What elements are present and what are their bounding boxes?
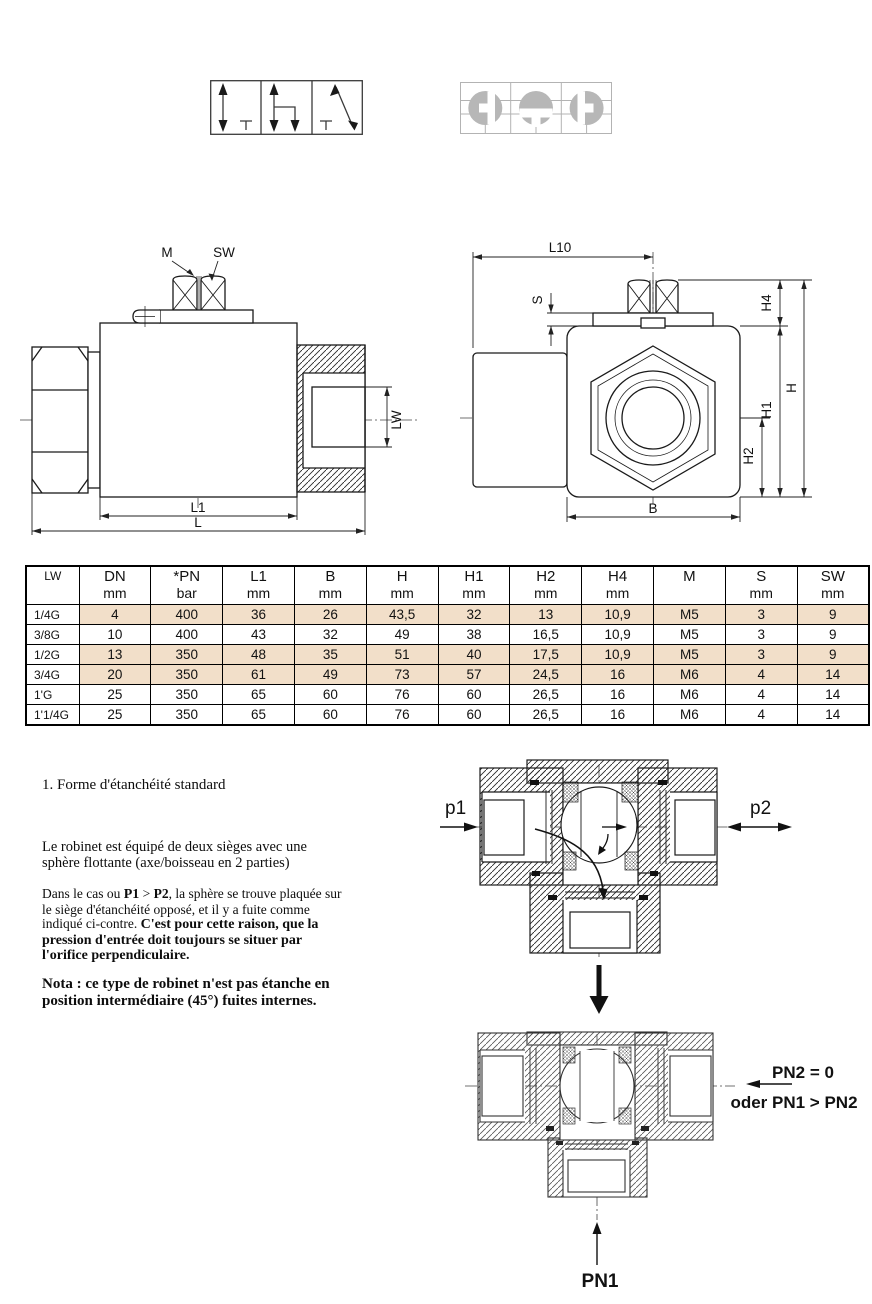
table-header-row: LW DNmm *PNbar L1mm Bmm Hmm H1mm H2mm H4… [26, 566, 869, 605]
header-pn: *PNbar [151, 566, 223, 605]
header-dn: DNmm [79, 566, 151, 605]
dim-h1-label: H1 [759, 401, 774, 418]
dim-b-label: B [648, 501, 657, 516]
notes-section: 1. Forme d'étanchéité standard Le robine… [42, 770, 372, 1020]
dim-h-label: H [784, 383, 799, 393]
end-view-drawing: L10 S H4 H H1 H2 B [440, 230, 860, 542]
p2-label: p2 [750, 798, 771, 819]
dim-h4-label: H4 [759, 294, 774, 312]
dim-h2-label: H2 [741, 447, 756, 464]
table-row: 1/2G133504835514017,510,9M539 [26, 645, 869, 665]
pn1-label: PN1 [582, 1271, 619, 1292]
table-row: 1/4G4400362643,5321310,9M539 [26, 605, 869, 625]
header-lw: LW [26, 566, 79, 605]
dim-l-label: L [194, 515, 202, 530]
dim-l10-label: L10 [549, 240, 572, 255]
table-row: 3/4G203506149735724,516M6414 [26, 665, 869, 685]
notes-paragraph-2: Dans le cas ou P1 > P2, la sphère se tro… [42, 887, 350, 964]
p1-label: p1 [445, 798, 466, 819]
notes-nota: Nota : ce type de robinet n'est pas étan… [42, 976, 360, 1010]
header-s: Smm [725, 566, 797, 605]
pn2-label: PN2 = 0 [772, 1063, 834, 1082]
dim-l1-label: L1 [190, 500, 205, 515]
table-row: 1'1/4G253506560766026,516M6414 [26, 705, 869, 726]
dim-s-label: S [530, 295, 545, 304]
datasheet-page: M SW LW L1 L [0, 0, 872, 1304]
header-m: M [654, 566, 726, 605]
dimensions-table: LW DNmm *PNbar L1mm Bmm Hmm H1mm H2mm H4… [25, 565, 870, 726]
flow-cross-section-diagram: p1 p2 [420, 740, 870, 1030]
header-h2: H2mm [510, 566, 582, 605]
header-h4: H4mm [582, 566, 654, 605]
pressure-cross-section-diagram: PN2 = 0 oder PN1 > PN2 PN1 [420, 1020, 872, 1304]
header-h: Hmm [366, 566, 438, 605]
table-row: 1'G253506560766026,516M6414 [26, 685, 869, 705]
directional-valve-symbol [210, 80, 363, 135]
dim-m-label: M [161, 245, 172, 260]
notes-paragraph-1: Le robinet est équipé de deux sièges ave… [42, 840, 342, 871]
side-view-drawing: M SW LW L1 L [20, 230, 440, 542]
oder-pn1-label: oder PN1 > PN2 [730, 1093, 857, 1112]
header-b: Bmm [294, 566, 366, 605]
header-l1: L1mm [223, 566, 295, 605]
dim-lw-label: LW [389, 410, 404, 430]
notes-heading: 1. Forme d'étanchéité standard [42, 777, 225, 794]
table-row: 3/8G104004332493816,510,9M539 [26, 625, 869, 645]
header-sw: SWmm [797, 566, 869, 605]
dim-sw-label: SW [213, 245, 235, 260]
header-h1: H1mm [438, 566, 510, 605]
ball-positions-symbol [460, 82, 612, 134]
